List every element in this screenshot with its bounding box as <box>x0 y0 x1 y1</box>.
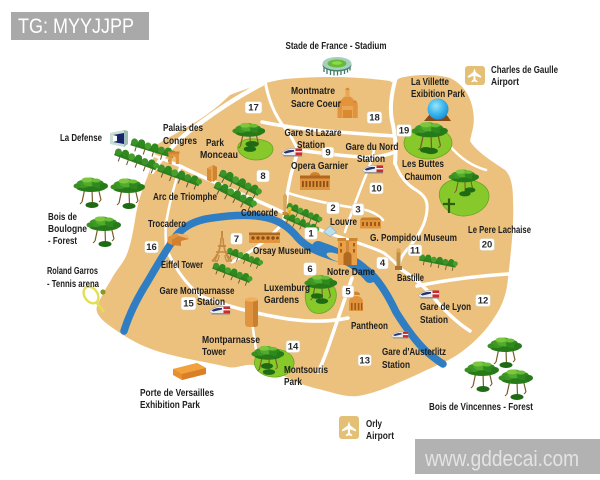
svg-text:3: 3 <box>355 205 360 216</box>
svg-text:13: 13 <box>359 355 370 366</box>
svg-text:19: 19 <box>399 126 410 137</box>
svg-text:1: 1 <box>308 229 314 240</box>
svg-text:www.gddecai.com: www.gddecai.com <box>424 446 579 471</box>
svg-text:Monceau: Monceau <box>200 149 238 161</box>
svg-text:Exhibition Park: Exhibition Park <box>140 399 200 411</box>
svg-text:- Tennis arena: - Tennis arena <box>47 278 99 290</box>
svg-text:Station: Station <box>297 139 325 151</box>
svg-text:14: 14 <box>288 342 299 353</box>
svg-text:Charles de Gaulle: Charles de Gaulle <box>491 64 558 76</box>
svg-text:Montmatre: Montmatre <box>291 85 335 97</box>
svg-text:Notre Dame: Notre Dame <box>327 266 375 278</box>
svg-text:G. Pompidou Museum: G. Pompidou Museum <box>370 232 457 244</box>
svg-text:Park: Park <box>206 137 224 149</box>
svg-text:Luxemburg: Luxemburg <box>264 282 310 294</box>
svg-text:Boulogne: Boulogne <box>48 223 87 235</box>
svg-text:15: 15 <box>183 299 194 310</box>
svg-text:5: 5 <box>345 287 351 298</box>
svg-text:10: 10 <box>371 183 382 194</box>
svg-text:9: 9 <box>325 148 330 159</box>
svg-text:Airport: Airport <box>366 430 394 442</box>
svg-text:Pantheon: Pantheon <box>351 320 388 332</box>
svg-text:Bois de: Bois de <box>48 211 77 223</box>
svg-text:Palais des: Palais des <box>163 122 203 134</box>
svg-text:Sacre Coeur: Sacre Coeur <box>291 98 341 110</box>
svg-text:Montparnasse: Montparnasse <box>202 334 260 346</box>
svg-text:Exibition Park: Exibition Park <box>411 88 465 100</box>
svg-text:12: 12 <box>478 296 489 307</box>
svg-text:7: 7 <box>234 234 239 245</box>
svg-text:8: 8 <box>260 171 265 182</box>
svg-text:Opera Garnier: Opera Garnier <box>291 160 348 172</box>
svg-text:Louvre: Louvre <box>330 216 357 228</box>
svg-text:Park: Park <box>284 376 302 388</box>
svg-text:Congres: Congres <box>163 135 197 147</box>
svg-text:Station: Station <box>420 314 448 326</box>
svg-text:Gare St Lazare: Gare St Lazare <box>285 127 342 139</box>
svg-text:Trocadero: Trocadero <box>148 218 186 230</box>
svg-text:Eiffel Tower: Eiffel Tower <box>161 259 203 271</box>
svg-text:Station: Station <box>357 153 385 165</box>
svg-text:Les Buttes: Les Buttes <box>402 158 444 170</box>
svg-text:Gare du Nord: Gare du Nord <box>346 141 399 153</box>
svg-text:18: 18 <box>369 113 380 124</box>
svg-text:Station: Station <box>197 296 225 308</box>
svg-text:Gare de Lyon: Gare de Lyon <box>420 301 471 313</box>
svg-text:11: 11 <box>410 245 421 256</box>
svg-text:Gare d'Austerlitz: Gare d'Austerlitz <box>382 346 446 358</box>
svg-text:La Villette: La Villette <box>411 76 449 88</box>
svg-text:17: 17 <box>248 103 259 114</box>
svg-text:Arc de Triomphe: Arc de Triomphe <box>153 191 217 203</box>
svg-text:Orly: Orly <box>366 418 382 430</box>
svg-text:Chaumon: Chaumon <box>405 171 442 183</box>
svg-text:Tower: Tower <box>202 346 226 358</box>
svg-text:16: 16 <box>146 242 157 253</box>
svg-text:Porte de Versailles: Porte de Versailles <box>140 387 214 399</box>
svg-text:Orsay Museum: Orsay Museum <box>253 245 311 257</box>
svg-text:Bois de Vincennes - Forest: Bois de Vincennes - Forest <box>429 401 533 413</box>
svg-text:2: 2 <box>330 203 335 214</box>
svg-text:- Forest: - Forest <box>48 235 77 247</box>
svg-text:Bastille: Bastille <box>397 272 424 284</box>
svg-text:Gardens: Gardens <box>264 294 299 306</box>
svg-text:Station: Station <box>382 359 410 371</box>
svg-text:Le Pere Lachaise: Le Pere Lachaise <box>468 224 531 236</box>
svg-text:Airport: Airport <box>491 76 519 88</box>
svg-text:Montsouris: Montsouris <box>284 364 328 376</box>
svg-text:4: 4 <box>380 258 386 269</box>
svg-text:Stade de France - Stadium: Stade de France - Stadium <box>286 40 387 52</box>
svg-text:Roland Garros: Roland Garros <box>47 265 98 277</box>
svg-text:La Defense: La Defense <box>60 132 102 144</box>
svg-text:TG: MYYJJPP: TG: MYYJJPP <box>18 15 134 38</box>
svg-text:20: 20 <box>482 240 493 251</box>
svg-text:6: 6 <box>307 264 312 275</box>
svg-text:Concorde: Concorde <box>241 207 278 219</box>
